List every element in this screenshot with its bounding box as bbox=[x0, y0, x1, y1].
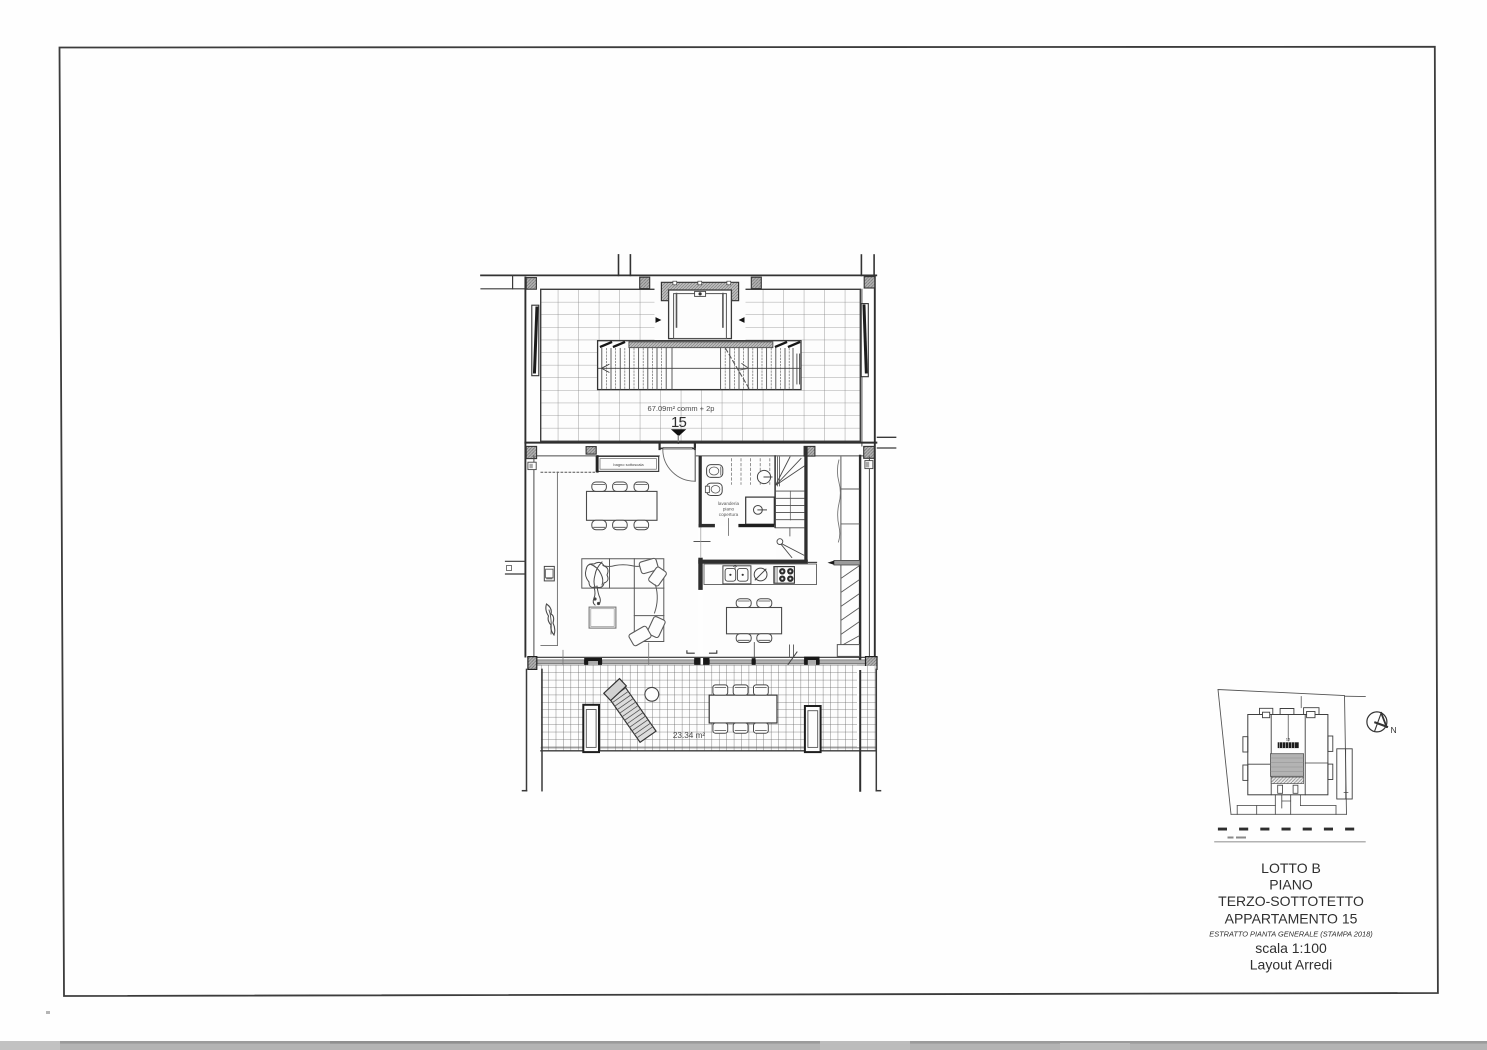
svg-text:copertura: copertura bbox=[719, 512, 739, 517]
svg-text:APPARTAMENTO 15: APPARTAMENTO 15 bbox=[1225, 911, 1358, 927]
svg-text:LOTTO B: LOTTO B bbox=[1261, 860, 1321, 876]
svg-text:lavanderia: lavanderia bbox=[718, 501, 740, 506]
svg-text:piano: piano bbox=[723, 507, 735, 512]
svg-text:TERZO-SOTTOTETTO: TERZO-SOTTOTETTO bbox=[1218, 893, 1364, 909]
svg-text:Layout Arredi: Layout Arredi bbox=[1250, 957, 1333, 973]
svg-text:N: N bbox=[1391, 725, 1397, 735]
svg-text:15: 15 bbox=[671, 414, 687, 431]
svg-text:67.09m² comm + 2p: 67.09m² comm + 2p bbox=[648, 404, 715, 413]
svg-text:ESTRATTO PIANTA GENERALE (STAM: ESTRATTO PIANTA GENERALE (STAMPA 2018) bbox=[1209, 930, 1373, 939]
svg-text:23.34 m²: 23.34 m² bbox=[673, 731, 706, 740]
svg-text:scala 1:100: scala 1:100 bbox=[1255, 940, 1327, 956]
svg-text:15: 15 bbox=[1286, 737, 1291, 742]
svg-text:bagno sottoscala: bagno sottoscala bbox=[613, 462, 644, 467]
svg-text:PIANO: PIANO bbox=[1269, 877, 1313, 893]
